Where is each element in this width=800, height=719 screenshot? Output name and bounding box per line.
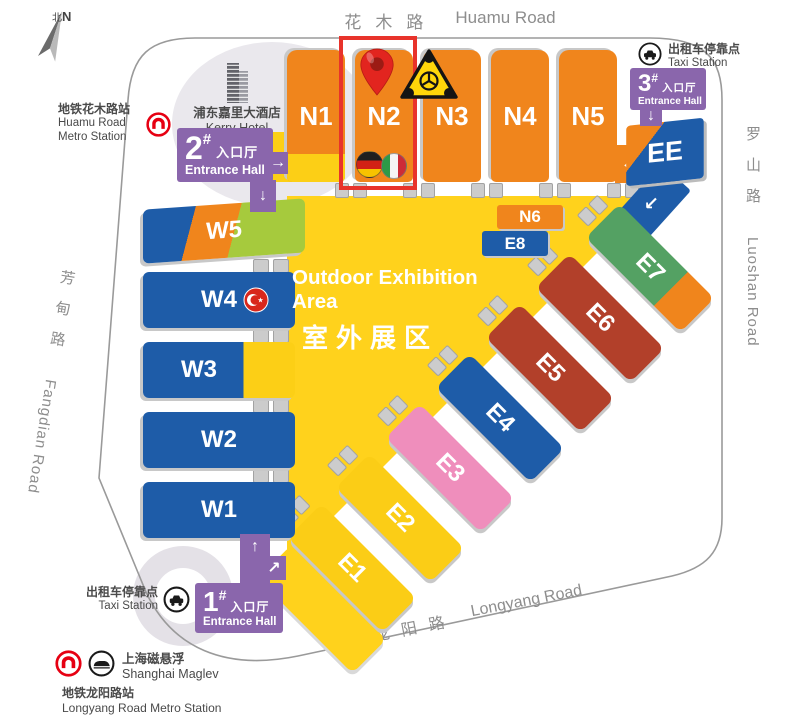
hall-W2: W2 [143, 412, 295, 468]
arrow-down-icon: ↓ [647, 107, 655, 125]
hall-connector [253, 469, 289, 483]
outdoor-area-label: Outdoor Exhibition Area 室外展区 [292, 266, 527, 355]
flag-germany-icon [356, 151, 383, 178]
taxi-station-bottom-label: 出租车停靠点 Taxi Station [58, 585, 158, 613]
arrow-up-icon: ↑ [251, 538, 259, 556]
shanghai-maglev-label: 上海磁悬浮 Shanghai Maglev [122, 652, 219, 682]
arrow-down-icon: ↓ [259, 187, 267, 205]
maglev-train-icon [88, 650, 115, 677]
hall-W3: W3 [143, 342, 295, 398]
arrow-upright-icon: ↗ [267, 558, 280, 578]
entrance-hall-2: 2# 入口厅 Entrance Hall [177, 128, 273, 182]
huamu-metro-station-label: 地铁花木路站 Huamu Road Metro Station [58, 102, 130, 144]
hall-connector [253, 329, 289, 343]
entrance2-right-arrow: → [268, 152, 288, 174]
compass-label: 北N [52, 8, 71, 26]
location-pin-icon [358, 48, 396, 96]
hall-connector [471, 183, 503, 198]
hall-N5: N5 [559, 50, 617, 182]
hall-N6: N6 [497, 205, 563, 229]
metro-logo-icon [55, 650, 82, 677]
longyang-metro-station-label: 地铁龙阳路站 Longyang Road Metro Station [62, 686, 221, 716]
hall-N1: N1 [287, 50, 345, 182]
hall-EE: EE [626, 118, 704, 186]
hall-connector [253, 399, 289, 413]
flag-italy-icon [381, 153, 407, 179]
hall-E8: E8 [482, 231, 548, 256]
entrance-hall-1: 1# 入口厅 Entrance Hall [195, 583, 283, 633]
hall-connector [253, 259, 289, 273]
hall-N4: N4 [491, 50, 549, 182]
hall-connector [539, 183, 571, 198]
flag-turkey-icon [243, 287, 269, 313]
event-triangle-logo-icon [398, 46, 460, 102]
arrow-downleft-icon: ↙ [644, 194, 659, 215]
hall-W5: W5 [143, 198, 305, 263]
hall-W4: W4 [143, 272, 295, 328]
taxi-station-top-label: 出租车停靠点 Taxi Station [668, 42, 740, 70]
expo-map: 北N 花木路 Huamu Road 罗山路 Luoshan Road 芳甸路 F… [0, 0, 800, 719]
hotel-building-icon [220, 58, 254, 106]
entrance1-diagonal-arrow: ↗ [262, 556, 286, 580]
hall-N1-yellow-section [287, 154, 345, 182]
arrow-right-icon: → [270, 154, 286, 172]
taxi-icon [163, 586, 190, 613]
road-label-luoshan: 罗山路 Luoshan Road [742, 126, 763, 426]
entrance-hall-3: 3# 入口厅 Entrance Hall [630, 68, 706, 110]
road-label-huamu: 花木路 Huamu Road [300, 8, 600, 33]
hall-W1: W1 [143, 482, 295, 538]
entrance2-corridor: ↓ [250, 180, 276, 212]
taxi-icon [638, 42, 662, 66]
entrance3-down-arrow: ↓ [640, 106, 662, 126]
metro-logo-icon [146, 112, 171, 137]
